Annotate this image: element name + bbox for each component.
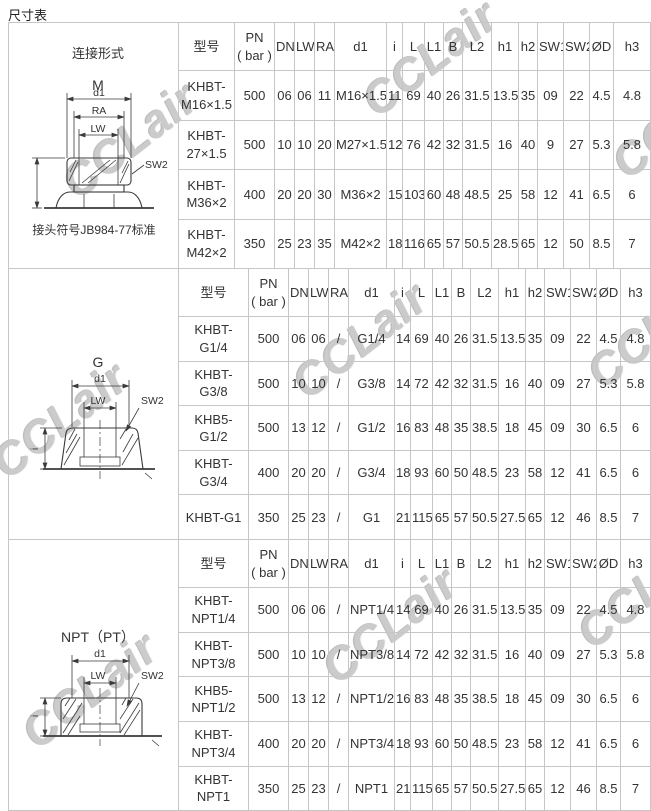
value-cell: 13.5 xyxy=(499,316,526,361)
column-header: ØD xyxy=(590,23,614,71)
value-cell: 500 xyxy=(249,632,289,677)
value-cell: 14 xyxy=(395,632,411,677)
value-cell: / xyxy=(329,406,349,451)
column-header: LW xyxy=(309,269,329,317)
column-header: L1 xyxy=(425,23,444,71)
column-header: DN xyxy=(289,269,309,317)
value-cell: 5.8 xyxy=(621,632,651,677)
model-cell: KHBT- M16×1.5 xyxy=(179,71,235,120)
value-cell: 60 xyxy=(425,170,444,219)
value-cell: 25 xyxy=(289,766,309,811)
value-cell: 40 xyxy=(526,632,545,677)
dim-label-sw2: SW2 xyxy=(141,395,164,407)
value-cell: 50 xyxy=(452,450,471,495)
value-cell: G1/4 xyxy=(349,316,395,361)
value-cell: 10 xyxy=(309,632,329,677)
value-cell: 500 xyxy=(249,588,289,633)
value-cell: 12 xyxy=(309,677,329,722)
value-cell: 09 xyxy=(538,71,564,120)
column-header: h3 xyxy=(614,23,651,71)
value-cell: M16×1.5 xyxy=(335,71,387,120)
value-cell: 500 xyxy=(249,677,289,722)
model-cell: KHBT- G3/4 xyxy=(179,450,249,495)
column-header: d1 xyxy=(349,269,395,317)
model-cell: KHBT-NPT1 xyxy=(179,766,249,811)
value-cell: 25 xyxy=(492,170,519,219)
value-cell: 7 xyxy=(621,495,651,540)
value-cell: 46 xyxy=(571,495,597,540)
value-cell: 12 xyxy=(545,495,571,540)
value-cell: 26 xyxy=(452,588,471,633)
dim-label-lw: LW xyxy=(91,395,106,407)
value-cell: 41 xyxy=(571,450,597,495)
value-cell: 6.5 xyxy=(597,677,621,722)
value-cell: 18 xyxy=(387,219,403,268)
value-cell: 69 xyxy=(411,588,433,633)
value-cell: 350 xyxy=(249,495,289,540)
value-cell: 31.5 xyxy=(463,71,492,120)
column-header: 型号 xyxy=(179,23,235,71)
model-cell: KHBT- NPT1/4 xyxy=(179,588,249,633)
value-cell: 09 xyxy=(545,677,571,722)
value-cell: 16 xyxy=(395,406,411,451)
value-cell: NPT3/4 xyxy=(349,721,395,766)
npt-diagram-cell: NPT（PT） d1 LW SW2 xyxy=(9,540,179,811)
value-cell: 35 xyxy=(526,588,545,633)
value-cell: 28.5 xyxy=(492,219,519,268)
value-cell: 65 xyxy=(526,766,545,811)
value-cell: 48 xyxy=(433,406,452,451)
value-cell: 22 xyxy=(571,588,597,633)
column-header: L1 xyxy=(433,540,452,588)
dim-label-i: i xyxy=(29,715,41,717)
value-cell: 48.5 xyxy=(471,721,499,766)
value-cell: 12 xyxy=(387,120,403,169)
value-cell: 8.5 xyxy=(590,219,614,268)
value-cell: 48.5 xyxy=(471,450,499,495)
value-cell: 18 xyxy=(499,677,526,722)
model-cell: KHBT- M42×2 xyxy=(179,219,235,268)
npt-thread-diagram: NPT（PT） d1 LW SW2 xyxy=(10,558,178,806)
value-cell: 8.5 xyxy=(597,495,621,540)
column-header: SW2 xyxy=(571,540,597,588)
value-cell: 46 xyxy=(571,766,597,811)
value-cell: 6 xyxy=(621,450,651,495)
column-header: LW xyxy=(309,540,329,588)
header-row: NPT（PT） d1 LW SW2 xyxy=(9,540,651,588)
value-cell: 6 xyxy=(621,721,651,766)
value-cell: 27 xyxy=(571,632,597,677)
value-cell: 65 xyxy=(433,766,452,811)
value-cell: 16 xyxy=(492,120,519,169)
value-cell: 48.5 xyxy=(463,170,492,219)
dim-label-sw2: SW2 xyxy=(141,670,164,682)
value-cell: 6.5 xyxy=(597,721,621,766)
column-header: L xyxy=(403,23,425,71)
value-cell: 21 xyxy=(395,495,411,540)
value-cell: 31.5 xyxy=(471,632,499,677)
value-cell: 72 xyxy=(411,361,433,406)
value-cell: 06 xyxy=(289,316,309,361)
column-header: 型号 xyxy=(179,540,249,588)
value-cell: 09 xyxy=(545,361,571,406)
value-cell: 35 xyxy=(452,677,471,722)
value-cell: 06 xyxy=(309,588,329,633)
value-cell: 23 xyxy=(499,721,526,766)
column-header: i xyxy=(395,269,411,317)
value-cell: M42×2 xyxy=(335,219,387,268)
value-cell: 20 xyxy=(275,170,295,219)
value-cell: 12 xyxy=(545,766,571,811)
value-cell: 5.8 xyxy=(621,361,651,406)
value-cell: 40 xyxy=(433,588,452,633)
column-header: ØD xyxy=(597,269,621,317)
value-cell: 38.5 xyxy=(471,406,499,451)
value-cell: 50.5 xyxy=(471,495,499,540)
value-cell: 116 xyxy=(403,219,425,268)
column-header: L xyxy=(411,540,433,588)
value-cell: 5.3 xyxy=(597,632,621,677)
value-cell: / xyxy=(329,316,349,361)
value-cell: 400 xyxy=(249,450,289,495)
value-cell: M27×1.5 xyxy=(335,120,387,169)
value-cell: 40 xyxy=(433,316,452,361)
column-header: i xyxy=(395,540,411,588)
value-cell: 18 xyxy=(395,450,411,495)
value-cell: G3/8 xyxy=(349,361,395,406)
value-cell: 15 xyxy=(387,170,403,219)
value-cell: 32 xyxy=(452,361,471,406)
value-cell: 31.5 xyxy=(471,588,499,633)
value-cell: NPT1/2 xyxy=(349,677,395,722)
value-cell: 500 xyxy=(249,361,289,406)
spec-table-npt: NPT（PT） d1 LW SW2 xyxy=(8,539,651,811)
column-header: RA xyxy=(315,23,335,71)
value-cell: 93 xyxy=(411,721,433,766)
value-cell: 69 xyxy=(411,316,433,361)
value-cell: 93 xyxy=(411,450,433,495)
value-cell: 31.5 xyxy=(471,361,499,406)
value-cell: 350 xyxy=(235,219,275,268)
value-cell: 57 xyxy=(452,495,471,540)
column-header: RA xyxy=(329,540,349,588)
value-cell: 31.5 xyxy=(463,120,492,169)
dim-label-d1: d1 xyxy=(94,648,106,660)
thread-type-label: G xyxy=(93,354,104,370)
value-cell: 16 xyxy=(499,632,526,677)
value-cell: 30 xyxy=(571,406,597,451)
column-header: d1 xyxy=(335,23,387,71)
value-cell: 7 xyxy=(621,766,651,811)
value-cell: 32 xyxy=(452,632,471,677)
column-header: L2 xyxy=(471,269,499,317)
model-cell: KHB5- NPT1/2 xyxy=(179,677,249,722)
column-header: h1 xyxy=(499,269,526,317)
value-cell: NPT1 xyxy=(349,766,395,811)
value-cell: 11 xyxy=(387,71,403,120)
value-cell: 09 xyxy=(545,316,571,361)
value-cell: 10 xyxy=(275,120,295,169)
value-cell: 400 xyxy=(235,170,275,219)
value-cell: 42 xyxy=(433,361,452,406)
value-cell: 4.5 xyxy=(597,588,621,633)
value-cell: 500 xyxy=(235,71,275,120)
value-cell: 4.8 xyxy=(621,588,651,633)
dim-label-d1: d1 xyxy=(93,87,105,99)
value-cell: / xyxy=(329,632,349,677)
model-cell: KHBT- G3/8 xyxy=(179,361,249,406)
header-row: 连接形式 M d1 RA LW xyxy=(9,23,651,71)
value-cell: 32 xyxy=(444,120,463,169)
value-cell: 500 xyxy=(249,406,289,451)
value-cell: 5.3 xyxy=(597,361,621,406)
column-header: B xyxy=(452,269,471,317)
value-cell: / xyxy=(329,721,349,766)
thread-type-label: NPT（PT） xyxy=(61,629,135,645)
value-cell: 103 xyxy=(403,170,425,219)
value-cell: 5.8 xyxy=(614,120,651,169)
value-cell: 350 xyxy=(249,766,289,811)
column-header: h2 xyxy=(526,269,545,317)
column-header: SW1 xyxy=(545,269,571,317)
value-cell: 7 xyxy=(614,219,651,268)
value-cell: 16 xyxy=(395,677,411,722)
m-diagram-cell: 连接形式 M d1 RA LW xyxy=(9,23,179,269)
value-cell: 31.5 xyxy=(471,316,499,361)
value-cell: 10 xyxy=(289,632,309,677)
value-cell: 8.5 xyxy=(597,766,621,811)
value-cell: 18 xyxy=(395,721,411,766)
column-header: B xyxy=(452,540,471,588)
column-header: RA xyxy=(329,269,349,317)
model-cell: KHBT- 27×1.5 xyxy=(179,120,235,169)
column-header: i xyxy=(387,23,403,71)
standard-note: 接头符号JB984-77标准 xyxy=(32,222,155,237)
value-cell: 4.5 xyxy=(597,316,621,361)
value-cell: 20 xyxy=(315,120,335,169)
column-header: PN ( bar ) xyxy=(235,23,275,71)
value-cell: 23 xyxy=(499,450,526,495)
value-cell: 42 xyxy=(425,120,444,169)
value-cell: 6 xyxy=(621,406,651,451)
value-cell: 25 xyxy=(275,219,295,268)
value-cell: 65 xyxy=(526,495,545,540)
model-cell: KHBT- NPT3/8 xyxy=(179,632,249,677)
value-cell: 30 xyxy=(315,170,335,219)
column-header: SW1 xyxy=(545,540,571,588)
value-cell: / xyxy=(329,677,349,722)
value-cell: 23 xyxy=(309,495,329,540)
value-cell: 20 xyxy=(309,450,329,495)
value-cell: 30 xyxy=(571,677,597,722)
value-cell: 35 xyxy=(452,406,471,451)
value-cell: 65 xyxy=(425,219,444,268)
column-header: DN xyxy=(275,23,295,71)
value-cell: NPT1/4 xyxy=(349,588,395,633)
header-row: G d1 LW SW2 xyxy=(9,269,651,317)
value-cell: 40 xyxy=(526,361,545,406)
value-cell: 14 xyxy=(395,588,411,633)
model-cell: KHB5- G1/2 xyxy=(179,406,249,451)
value-cell: G3/4 xyxy=(349,450,395,495)
value-cell: 13.5 xyxy=(499,588,526,633)
value-cell: 06 xyxy=(275,71,295,120)
value-cell: 58 xyxy=(519,170,538,219)
value-cell: 10 xyxy=(295,120,315,169)
value-cell: 12 xyxy=(545,450,571,495)
model-cell: KHBT-G1 xyxy=(179,495,249,540)
value-cell: 10 xyxy=(309,361,329,406)
value-cell: 50 xyxy=(452,721,471,766)
value-cell: 4.8 xyxy=(621,316,651,361)
value-cell: / xyxy=(329,450,349,495)
value-cell: / xyxy=(329,361,349,406)
value-cell: M36×2 xyxy=(335,170,387,219)
value-cell: 27 xyxy=(564,120,590,169)
value-cell: 57 xyxy=(452,766,471,811)
value-cell: 50.5 xyxy=(471,766,499,811)
value-cell: 69 xyxy=(403,71,425,120)
column-header: LW xyxy=(295,23,315,71)
column-header: DN xyxy=(289,540,309,588)
value-cell: 500 xyxy=(235,120,275,169)
value-cell: / xyxy=(329,766,349,811)
value-cell: 16 xyxy=(499,361,526,406)
column-header: h1 xyxy=(499,540,526,588)
value-cell: 38.5 xyxy=(471,677,499,722)
value-cell: 22 xyxy=(564,71,590,120)
column-header: L1 xyxy=(433,269,452,317)
value-cell: 12 xyxy=(309,406,329,451)
column-header: SW2 xyxy=(564,23,590,71)
column-header: L2 xyxy=(471,540,499,588)
value-cell: 6 xyxy=(614,170,651,219)
spec-table-g: G d1 LW SW2 xyxy=(8,268,651,540)
value-cell: 13.5 xyxy=(492,71,519,120)
value-cell: 12 xyxy=(545,721,571,766)
value-cell: 50 xyxy=(564,219,590,268)
value-cell: 65 xyxy=(519,219,538,268)
value-cell: 115 xyxy=(411,495,433,540)
dim-label-sw2: SW2 xyxy=(145,159,168,171)
value-cell: 6 xyxy=(621,677,651,722)
value-cell: 18 xyxy=(499,406,526,451)
value-cell: 09 xyxy=(545,632,571,677)
value-cell: 41 xyxy=(564,170,590,219)
dim-label-lw: LW xyxy=(91,670,106,682)
column-header: B xyxy=(444,23,463,71)
value-cell: 40 xyxy=(425,71,444,120)
value-cell: 58 xyxy=(526,721,545,766)
value-cell: 13 xyxy=(289,406,309,451)
value-cell: 09 xyxy=(545,588,571,633)
value-cell: 06 xyxy=(309,316,329,361)
column-header: h1 xyxy=(492,23,519,71)
value-cell: 22 xyxy=(571,316,597,361)
value-cell: 10 xyxy=(289,361,309,406)
value-cell: 5.3 xyxy=(590,120,614,169)
value-cell: / xyxy=(329,588,349,633)
value-cell: 35 xyxy=(519,71,538,120)
connection-form-label: 连接形式 xyxy=(72,46,124,61)
m-thread-diagram: 连接形式 M d1 RA LW xyxy=(10,41,178,264)
value-cell: 48 xyxy=(433,677,452,722)
value-cell: 9 xyxy=(538,120,564,169)
g-diagram-cell: G d1 LW SW2 xyxy=(9,269,179,540)
value-cell: 50.5 xyxy=(463,219,492,268)
column-header: h3 xyxy=(621,540,651,588)
value-cell: 27.5 xyxy=(499,495,526,540)
value-cell: 57 xyxy=(444,219,463,268)
value-cell: 76 xyxy=(403,120,425,169)
value-cell: G1/2 xyxy=(349,406,395,451)
value-cell: 12 xyxy=(538,219,564,268)
column-header: h2 xyxy=(519,23,538,71)
value-cell: 27.5 xyxy=(499,766,526,811)
value-cell: 6.5 xyxy=(597,406,621,451)
dim-label-ra: RA xyxy=(92,105,107,117)
value-cell: 12 xyxy=(538,170,564,219)
value-cell: 83 xyxy=(411,677,433,722)
value-cell: 400 xyxy=(249,721,289,766)
value-cell: / xyxy=(329,495,349,540)
column-header: ØD xyxy=(597,540,621,588)
column-header: PN ( bar ) xyxy=(249,540,289,588)
value-cell: 45 xyxy=(526,677,545,722)
page-title: 尺寸表 xyxy=(0,0,651,23)
value-cell: 27 xyxy=(571,361,597,406)
value-cell: 45 xyxy=(526,406,545,451)
column-header: SW2 xyxy=(571,269,597,317)
value-cell: 40 xyxy=(519,120,538,169)
value-cell: 48 xyxy=(444,170,463,219)
dimension-sheet: 尺寸表 连接形式 M xyxy=(0,0,651,811)
dim-label-lw: LW xyxy=(91,123,106,135)
value-cell: 06 xyxy=(295,71,315,120)
value-cell: 500 xyxy=(249,316,289,361)
value-cell: 41 xyxy=(571,721,597,766)
column-header: d1 xyxy=(349,540,395,588)
model-cell: KHBT- NPT3/4 xyxy=(179,721,249,766)
value-cell: 09 xyxy=(545,406,571,451)
column-header: h2 xyxy=(526,540,545,588)
value-cell: 35 xyxy=(526,316,545,361)
spec-table-m: 连接形式 M d1 RA LW xyxy=(8,22,651,269)
value-cell: 6.5 xyxy=(597,450,621,495)
value-cell: 21 xyxy=(395,766,411,811)
value-cell: 25 xyxy=(289,495,309,540)
value-cell: 115 xyxy=(411,766,433,811)
value-cell: 4.8 xyxy=(614,71,651,120)
value-cell: 13 xyxy=(289,677,309,722)
value-cell: 83 xyxy=(411,406,433,451)
value-cell: 23 xyxy=(295,219,315,268)
column-header: 型号 xyxy=(179,269,249,317)
value-cell: NPT3/8 xyxy=(349,632,395,677)
value-cell: 65 xyxy=(433,495,452,540)
column-header: SW1 xyxy=(538,23,564,71)
value-cell: 20 xyxy=(295,170,315,219)
value-cell: 26 xyxy=(444,71,463,120)
value-cell: 20 xyxy=(289,450,309,495)
model-cell: KHBT- M36×2 xyxy=(179,170,235,219)
dim-label-d1: d1 xyxy=(94,373,106,385)
value-cell: 60 xyxy=(433,450,452,495)
value-cell: 42 xyxy=(433,632,452,677)
value-cell: G1 xyxy=(349,495,395,540)
value-cell: 14 xyxy=(395,316,411,361)
g-thread-diagram: G d1 LW SW2 xyxy=(10,287,178,535)
